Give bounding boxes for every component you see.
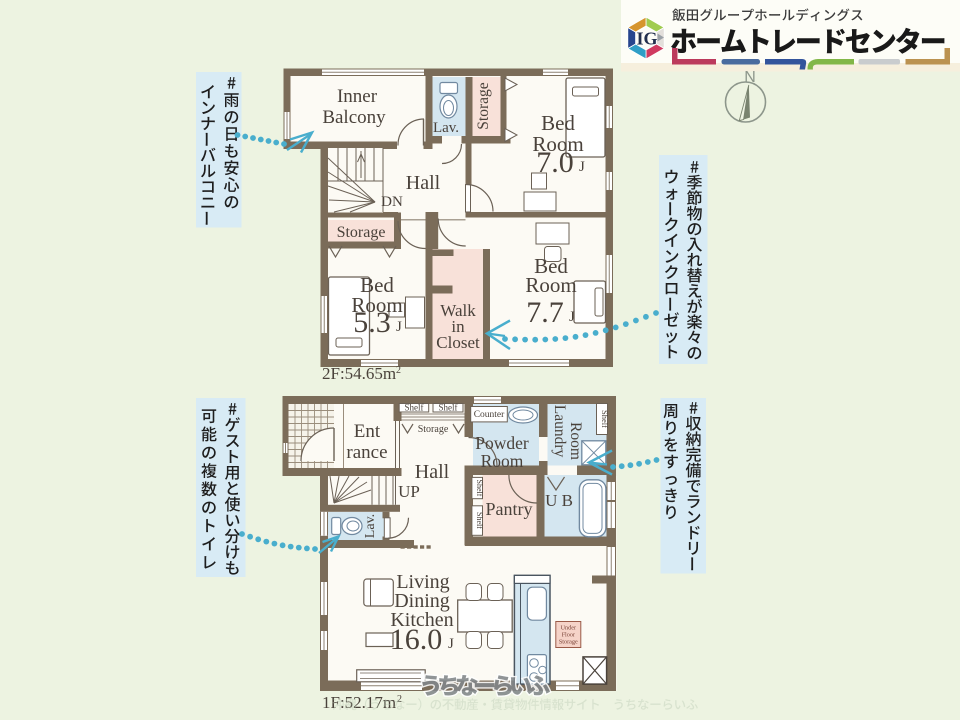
svg-text:Closet: Closet [436,333,480,352]
svg-text:Hall: Hall [415,461,450,483]
svg-text:5.3: 5.3 [353,306,391,339]
svg-text:Lav.: Lav. [433,120,459,136]
svg-text:Floor: Floor [562,632,575,639]
svg-text:Pantry: Pantry [486,499,533,519]
svg-text:2F:54.65m: 2F:54.65m [322,364,396,383]
svg-text:7.7: 7.7 [526,296,564,329]
svg-text:Shelf: Shelf [405,403,424,413]
svg-text:Storage: Storage [418,424,449,435]
svg-text:N: N [744,69,756,86]
svg-text:Laundry: Laundry [551,405,568,458]
svg-text:rance: rance [346,442,387,463]
svg-text:Shelf: Shelf [475,480,484,497]
svg-text:DN: DN [381,194,403,210]
svg-text:Powder: Powder [475,433,529,453]
svg-text:J: J [579,159,585,175]
svg-text:U B: U B [545,491,573,510]
svg-text:J: J [569,309,575,325]
svg-text:2: 2 [396,365,401,376]
svg-text:Under: Under [561,625,576,632]
svg-text:Shelf: Shelf [475,512,484,529]
svg-text:Shelf: Shelf [439,403,458,413]
svg-text:Storage: Storage [559,639,578,646]
svg-text:Counter: Counter [474,410,505,420]
svg-text:16.0: 16.0 [390,623,443,656]
svg-text:Balcony: Balcony [322,107,386,128]
svg-text:Inner: Inner [337,86,378,107]
svg-text:UP: UP [398,482,420,501]
svg-text:Storage: Storage [337,224,386,241]
svg-text:J: J [448,636,454,652]
svg-text:Shelf: Shelf [600,410,610,428]
svg-text:Room: Room [481,451,524,471]
svg-text:Hall: Hall [406,172,441,194]
svg-text:Room: Room [567,422,584,460]
svg-text:IG: IG [636,29,657,49]
svg-text:Room: Room [525,273,576,297]
svg-text:Lav.: Lav. [363,514,378,538]
svg-text:Ent: Ent [354,421,381,442]
svg-text:Storage: Storage [475,82,492,129]
svg-text:J: J [396,319,402,335]
svg-text:7.0: 7.0 [536,146,574,179]
